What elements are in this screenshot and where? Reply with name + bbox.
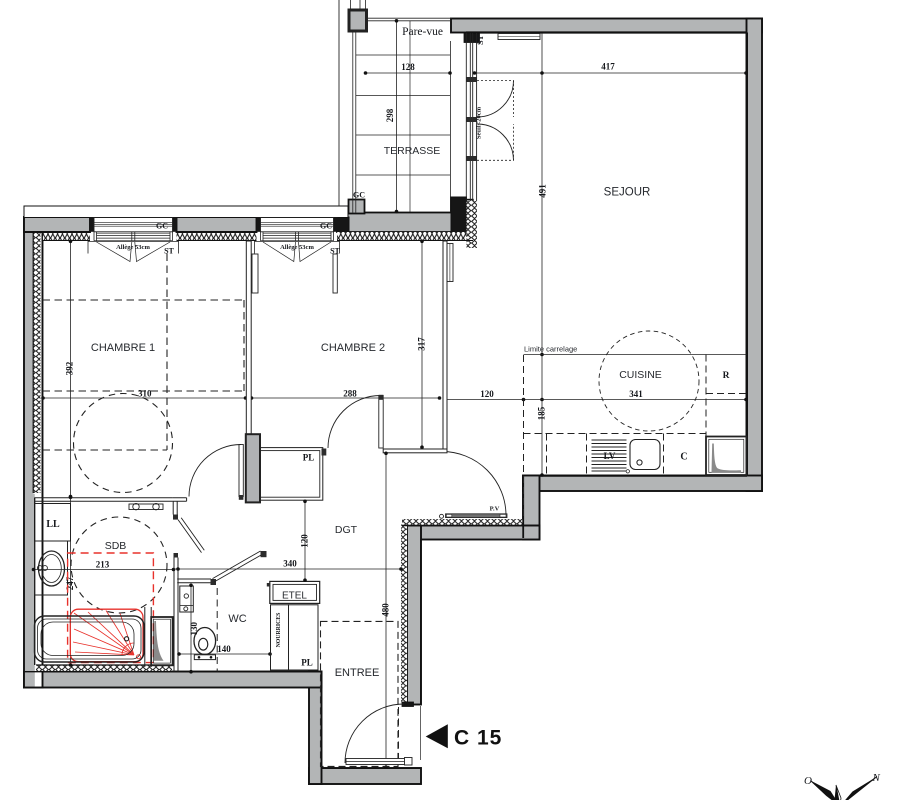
svg-text:310: 310 xyxy=(138,389,152,399)
svg-text:Seuil<20cm: Seuil<20cm xyxy=(476,106,483,139)
svg-text:LL: LL xyxy=(46,519,60,530)
svg-text:GC: GC xyxy=(353,191,365,200)
svg-text:TERRASSE: TERRASSE xyxy=(384,145,441,157)
svg-text:SDB: SDB xyxy=(105,540,127,552)
svg-text:GC: GC xyxy=(156,222,168,231)
svg-text:C 15: C 15 xyxy=(454,727,502,750)
svg-text:GC: GC xyxy=(320,222,332,231)
svg-text:ST: ST xyxy=(164,247,174,256)
svg-text:PL: PL xyxy=(301,658,313,668)
svg-text:PL: PL xyxy=(303,453,315,463)
svg-text:317: 317 xyxy=(417,337,427,351)
svg-text:185: 185 xyxy=(537,406,547,420)
svg-text:Allège 53cm: Allège 53cm xyxy=(116,244,150,251)
svg-text:Limite carrelage: Limite carrelage xyxy=(524,345,577,354)
svg-text:SEJOUR: SEJOUR xyxy=(604,187,651,199)
svg-text:ST: ST xyxy=(476,34,485,44)
svg-text:ENTREE: ENTREE xyxy=(335,667,380,679)
svg-text:LV: LV xyxy=(604,451,616,461)
svg-text:120: 120 xyxy=(300,534,310,548)
svg-text:247: 247 xyxy=(65,576,75,590)
svg-text:NOURRICES: NOURRICES xyxy=(276,613,282,648)
svg-text:130: 130 xyxy=(189,622,199,636)
svg-text:WC: WC xyxy=(228,613,246,625)
svg-text:P.V: P.V xyxy=(490,506,500,513)
svg-text:Allège 53cm: Allège 53cm xyxy=(280,244,314,251)
svg-text:120: 120 xyxy=(480,389,494,399)
svg-text:O: O xyxy=(804,775,812,787)
svg-text:340: 340 xyxy=(283,559,297,569)
svg-text:DGT: DGT xyxy=(335,524,358,536)
svg-text:ETEL: ETEL xyxy=(282,591,307,602)
svg-text:140: 140 xyxy=(217,644,231,654)
svg-text:CUISINE: CUISINE xyxy=(619,369,662,381)
svg-text:213: 213 xyxy=(96,560,110,570)
svg-text:N: N xyxy=(872,772,881,784)
svg-text:R: R xyxy=(723,371,730,381)
svg-text:C: C xyxy=(680,452,687,463)
svg-text:288: 288 xyxy=(343,389,357,399)
svg-text:Pare-vue: Pare-vue xyxy=(402,26,443,38)
svg-text:128: 128 xyxy=(401,62,415,72)
svg-text:CHAMBRE 1: CHAMBRE 1 xyxy=(91,342,155,354)
svg-text:CHAMBRE 2: CHAMBRE 2 xyxy=(321,342,385,354)
svg-text:298: 298 xyxy=(385,108,395,122)
svg-text:417: 417 xyxy=(601,62,615,72)
svg-text:491: 491 xyxy=(538,184,548,198)
svg-text:480: 480 xyxy=(381,603,391,617)
svg-text:392: 392 xyxy=(64,361,74,375)
svg-text:341: 341 xyxy=(629,389,643,399)
